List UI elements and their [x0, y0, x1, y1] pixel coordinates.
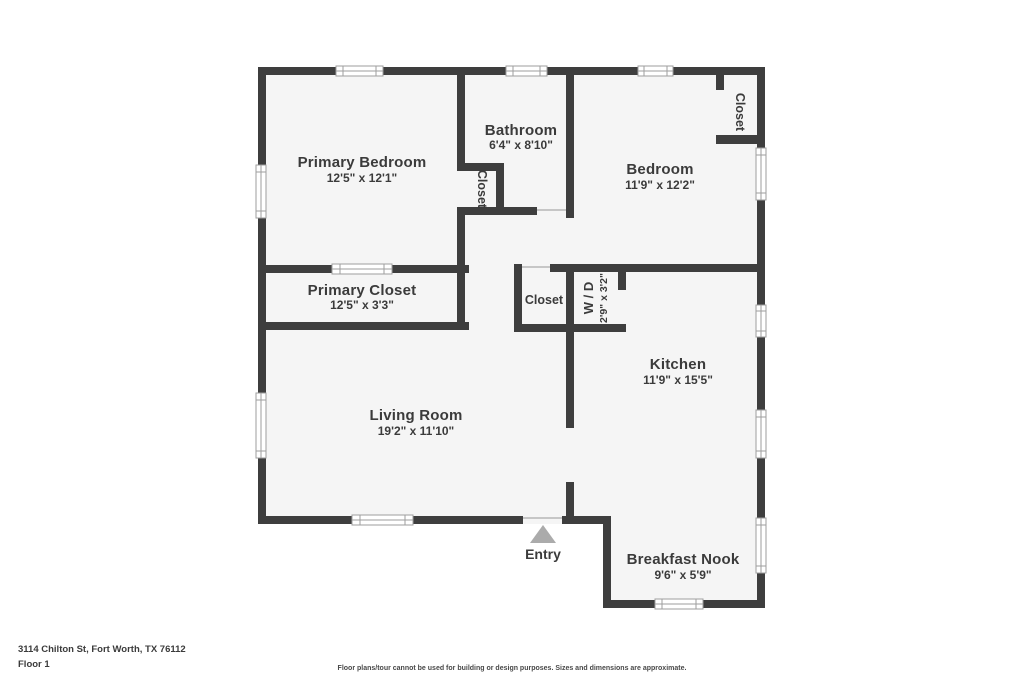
wall [566, 332, 574, 428]
window-icon [756, 518, 766, 573]
room-label-primary-bedroom: Primary Bedroom [298, 154, 427, 171]
room-label-living-room: Living Room [369, 407, 462, 424]
room-dims-breakfast-nook: 9'6" x 5'9" [654, 568, 711, 582]
room-dims-laundry: 2'9" x 3'2" [598, 273, 610, 323]
wall [603, 516, 611, 608]
room-label-primary-closet: Primary Closet [308, 282, 417, 299]
entry-label: Entry [525, 546, 561, 562]
wall [457, 207, 537, 215]
sliding-door-icon [332, 264, 392, 274]
window-icon [756, 148, 766, 200]
room-dims-kitchen: 11'9" x 15'5" [643, 373, 713, 387]
room-label-breakfast-nook: Breakfast Nook [627, 551, 740, 568]
wall [716, 135, 765, 144]
wall [716, 67, 724, 90]
wall [514, 324, 626, 332]
window-icon [336, 66, 383, 76]
wall [618, 264, 626, 290]
wall [457, 67, 465, 171]
wall [566, 264, 574, 332]
floor-plan: Primary Bedroom 12'5" x 12'1" Bathroom 6… [0, 0, 1024, 683]
footer-floor-label: Floor 1 [18, 659, 50, 670]
window-icon [506, 66, 547, 76]
room-label-bathroom: Bathroom [485, 122, 557, 139]
wall [514, 264, 522, 332]
wall [392, 265, 469, 273]
room-dims-primary-closet: 12'5" x 3'3" [330, 298, 394, 312]
wall [258, 322, 469, 330]
window-icon [756, 410, 766, 458]
window-icon [638, 66, 673, 76]
room-dims-bedroom: 11'9" x 12'2" [625, 178, 695, 192]
footer-disclaimer: Floor plans/tour cannot be used for buil… [338, 665, 687, 672]
room-label-closet-top-right: Closet [733, 93, 747, 132]
wall [566, 482, 574, 524]
footer: 3114 Chilton St, Fort Worth, TX 76112 Fl… [18, 644, 686, 672]
room-dims-living-room: 19'2" x 11'10" [378, 424, 454, 438]
room-dims-primary-bedroom: 12'5" x 12'1" [327, 171, 397, 185]
room-dims-bathroom: 6'4" x 8'10" [489, 138, 553, 152]
room-label-closet-bathroom: Closet [475, 170, 489, 209]
room-label-kitchen: Kitchen [650, 356, 706, 373]
window-icon [256, 165, 266, 218]
window-icon [256, 393, 266, 458]
wall [258, 265, 332, 273]
entry-arrow-icon [530, 525, 556, 543]
window-icon [352, 515, 413, 525]
room-label-closet-middle: Closet [525, 293, 564, 307]
wall [566, 67, 574, 218]
footer-address: 3114 Chilton St, Fort Worth, TX 76112 [18, 644, 186, 655]
window-icon [756, 305, 766, 337]
window-icon [655, 599, 703, 609]
room-label-laundry: W / D [581, 282, 596, 315]
wall [550, 264, 757, 272]
room-label-bedroom: Bedroom [626, 161, 693, 178]
